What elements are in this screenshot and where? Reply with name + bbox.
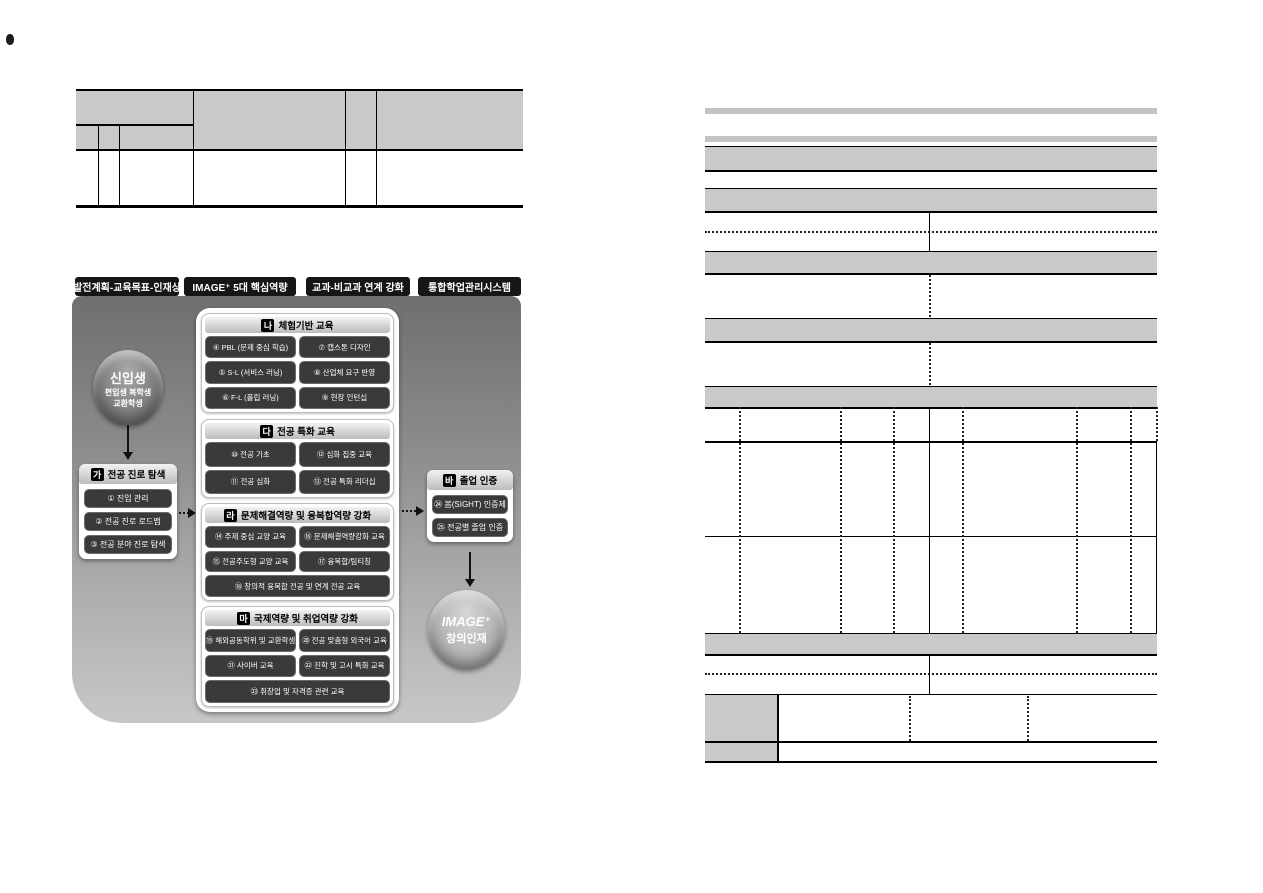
entry-circle-sub1: 편입생 복학생 xyxy=(105,387,151,398)
scan-artifact xyxy=(6,34,14,45)
right-table-dotted-line xyxy=(929,343,931,385)
diagram-item-capstone: ⑦ 캡스톤 디자인 xyxy=(299,336,390,358)
section-na-badge: 나 xyxy=(261,319,274,332)
scanned-page-spread: 발전계획-교육목표-인재상 IMAGE⁺ 5대 핵심역량 교과-비교과 연계 강… xyxy=(0,0,1263,893)
diagram-item-field-internship: ⑨ 현장 인턴십 xyxy=(299,387,390,409)
right-table-dotted-line xyxy=(840,407,842,633)
right-table-line xyxy=(1156,441,1158,633)
dotted-arrow-head-icon xyxy=(416,506,424,516)
right-table-line xyxy=(705,654,1157,656)
left-table-line xyxy=(98,124,100,207)
diagram-tab-core-competencies: IMAGE⁺ 5대 핵심역량 xyxy=(184,277,296,296)
section-ba-badge: 바 xyxy=(443,474,456,487)
right-table-grey-cell xyxy=(705,742,778,762)
diagram-tab-curricular-link: 교과-비교과 연계 강화 xyxy=(306,277,410,296)
right-table-grey-row xyxy=(705,147,1157,170)
section-ma-box: 마 국제역량 및 취업역량 강화 ⑲ 해외공동학위 및 교환학생 ⑳ 전공 맞춤… xyxy=(201,606,394,707)
section-ra-box: 라 문제해결역량 및 융복합역량 강화 ⑭ 주제 중심 교양 교육 ⑯ 문제해결… xyxy=(201,503,394,601)
left-table-line xyxy=(76,205,523,208)
right-table-line xyxy=(705,741,1157,743)
right-table-grey-row xyxy=(705,252,1157,273)
right-table-line xyxy=(777,695,779,762)
right-table-dotted-line xyxy=(909,696,911,741)
left-table-line xyxy=(376,89,378,207)
right-table-dotted-line xyxy=(705,231,1157,233)
result-circle-title: 창의인재 xyxy=(446,630,486,646)
section-na-box: 나 체험기반 교육 ④ PBL (문제 중심 학습) ⑦ 캡스톤 디자인 ⑤ S… xyxy=(201,313,394,413)
right-table-dotted-line xyxy=(962,407,964,633)
diagram-tab-development-plan: 발전계획-교육목표-인재상 xyxy=(75,277,179,296)
arrow-down-head-icon xyxy=(465,579,475,587)
right-table-dotted-line xyxy=(893,407,895,633)
section-ra-badge: 라 xyxy=(224,509,237,522)
left-table-line xyxy=(345,89,347,207)
section-ba-box: 바 졸업 인증 ㉔ 봄(SIGHT) 인증제 ㉕ 전공별 졸업 인증 xyxy=(427,470,513,542)
right-table-line xyxy=(705,188,1157,190)
diagram-item-overseas-degree: ⑲ 해외공동학위 및 교환학생 xyxy=(205,629,296,652)
result-circle-brand: IMAGE⁺ xyxy=(442,614,491,630)
right-table-grey-cell xyxy=(705,695,778,742)
left-table-line xyxy=(76,89,523,91)
right-table-grey-row xyxy=(705,189,1157,211)
left-table-header-fill xyxy=(76,90,523,149)
section-da-title: 전공 특화 교육 xyxy=(277,424,335,438)
left-table-line xyxy=(193,89,195,207)
right-table-line xyxy=(705,211,1157,213)
section-da-badge: 다 xyxy=(260,425,273,438)
right-table-line xyxy=(705,441,1157,443)
section-ba-header: 바 졸업 인증 xyxy=(427,470,513,490)
diagram-item-theme-liberal-arts: ⑭ 주제 중심 교양 교육 xyxy=(205,526,296,548)
right-table-dotted-line xyxy=(1027,696,1029,741)
left-table-line xyxy=(119,124,121,207)
diagram-item-major-graduation-cert: ㉕ 전공별 졸업 인증 xyxy=(432,518,508,537)
right-table-center-divider xyxy=(929,211,931,251)
diagram-item-career-roadmap: ② 전공 진로 로드맵 xyxy=(84,512,172,531)
section-ma-title: 국제역량 및 취업역량 강화 xyxy=(254,611,358,625)
section-ma-badge: 마 xyxy=(237,612,250,625)
diagram-tab-management-system: 통합학업관리시스템 xyxy=(418,277,521,296)
right-table-dotted-line xyxy=(1076,407,1078,633)
right-table-dotted-line xyxy=(929,275,931,317)
diagram-item-major-foreign-language: ⑳ 전공 맞춤형 외국어 교육 xyxy=(299,629,390,652)
right-table-line xyxy=(705,251,1157,253)
right-table-thin-bar xyxy=(705,136,1157,142)
right-table-center-divider xyxy=(929,654,931,694)
diagram-item-convergence-teamteaching: ⑰ 융복합/팀티칭 xyxy=(299,551,390,573)
dotted-arrow-head-icon xyxy=(188,508,196,518)
diagram-item-industry-needs: ⑧ 산업체 요구 반영 xyxy=(299,361,390,383)
diagram-item-cyber-education: ㉑ 사이버 교육 xyxy=(205,655,296,678)
entry-circle-sub2: 교환학생 xyxy=(113,398,142,409)
diagram-item-major-leadership: ⑬ 전공 특화 리더십 xyxy=(299,470,390,495)
section-ba-title: 졸업 인증 xyxy=(460,473,498,487)
right-table-line xyxy=(705,536,1157,538)
right-table-line xyxy=(705,273,1157,275)
right-table-line xyxy=(705,761,1157,763)
diagram-item-entry-management: ① 진입 관리 xyxy=(84,489,172,508)
section-da-header: 다 전공 특화 교육 xyxy=(205,423,390,439)
diagram-item-creative-convergence: ⑱ 창의적 융복합 전공 및 연계 전공 교육 xyxy=(205,575,390,597)
right-table-dotted-line xyxy=(1130,407,1132,633)
diagram-item-major-led-liberal-arts: ⑮ 전공주도형 교양 교육 xyxy=(205,551,296,573)
result-talent-circle: IMAGE⁺ 창의인재 xyxy=(428,590,505,670)
arrow-down-head-icon xyxy=(123,452,133,460)
section-ga-header: 가 전공 진로 탐색 xyxy=(79,464,177,484)
right-table-line xyxy=(705,146,1157,148)
right-table-line xyxy=(705,386,1157,388)
diagram-item-service-learning: ⑤ S-L (서비스 러닝) xyxy=(205,361,296,383)
right-table-line xyxy=(705,694,1157,696)
section-ma-header: 마 국제역량 및 취업역량 강화 xyxy=(205,610,390,626)
section-ga-badge: 가 xyxy=(91,468,104,481)
diagram-item-exam-specialized: ㉒ 진학 및 고시 특화 교육 xyxy=(299,655,390,678)
right-table-grey-row xyxy=(705,319,1157,341)
diagram-item-pbl: ④ PBL (문제 중심 학습) xyxy=(205,336,296,358)
diagram-item-major-basic: ⑩ 전공 기초 xyxy=(205,442,296,467)
diagram-item-major-advanced: ⑪ 전공 심화 xyxy=(205,470,296,495)
diagram-item-intensive-education: ⑫ 심화 집중 교육 xyxy=(299,442,390,467)
right-table-line xyxy=(705,170,1157,172)
section-ra-title: 문제해결역량 및 융복합역량 강화 xyxy=(241,508,371,522)
right-table-grey-row xyxy=(705,387,1157,407)
section-ra-header: 라 문제해결역량 및 융복합역량 강화 xyxy=(205,507,390,523)
left-table-line xyxy=(76,124,193,126)
arrow-down xyxy=(127,425,129,453)
dotted-arrow xyxy=(402,510,416,512)
diagram-item-flipped-learning: ⑥ F-L (플립 러닝) xyxy=(205,387,296,409)
diagram-item-employment-certificates: ㉓ 취창업 및 자격증 관련 교육 xyxy=(205,680,390,703)
section-da-box: 다 전공 특화 교육 ⑩ 전공 기초 ⑫ 심화 집중 교육 ⑪ 전공 심화 ⑬ … xyxy=(201,419,394,498)
section-na-title: 체험기반 교육 xyxy=(278,318,333,332)
arrow-down xyxy=(469,552,471,580)
right-table-dotted-line xyxy=(739,407,741,633)
right-table-grey-row xyxy=(705,634,1157,654)
entry-circle-title: 신입생 xyxy=(110,368,146,387)
section-ga-box: 가 전공 진로 탐색 ① 진입 관리 ② 전공 진로 로드맵 ③ 전공 분야 진… xyxy=(79,464,177,559)
right-table-center-divider xyxy=(929,407,931,633)
diagram-item-problem-solving: ⑯ 문제해결역량강화 교육 xyxy=(299,526,390,548)
section-ga-title: 전공 진로 탐색 xyxy=(108,467,166,481)
right-table-line xyxy=(705,633,1157,635)
right-table-line xyxy=(705,318,1157,320)
right-table-line xyxy=(705,341,1157,343)
diagram-item-sight-certification: ㉔ 봄(SIGHT) 인증제 xyxy=(432,495,508,514)
diagram-item-career-exploration: ③ 전공 분야 진로 탐색 xyxy=(84,535,172,554)
section-na-header: 나 체험기반 교육 xyxy=(205,317,390,333)
right-table-thin-bar xyxy=(705,108,1157,114)
left-table-line xyxy=(76,149,523,152)
right-table-dotted-line xyxy=(1156,407,1158,441)
right-table-line xyxy=(705,407,1157,409)
entry-students-circle: 신입생 편입생 복학생 교환학생 xyxy=(93,350,163,426)
right-table-dotted-line xyxy=(705,673,1157,675)
